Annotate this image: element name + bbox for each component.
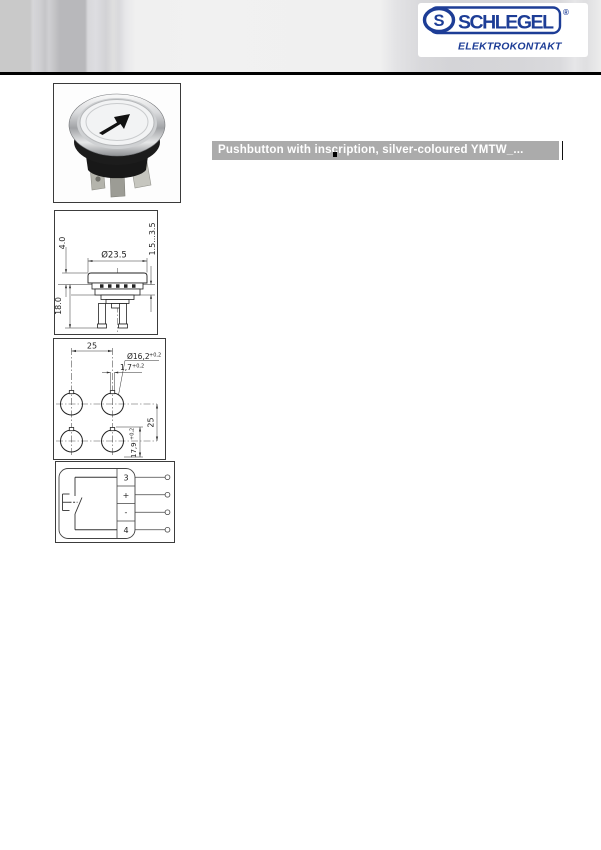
- schlegel-logo-graphic: S SCHLEGEL ® ELEKTROKONTAKT: [418, 3, 588, 57]
- actuator-icon: [63, 494, 78, 511]
- arrow: [143, 260, 148, 262]
- arrow: [65, 285, 67, 289]
- dim-notch-width: 1,7: [120, 363, 132, 372]
- arrow: [72, 350, 77, 352]
- dim-hole-tolerance: +0,2: [149, 353, 161, 359]
- arrow: [88, 260, 93, 262]
- dim-notch-distance-tolerance: +0,2: [130, 428, 136, 440]
- terminal-hole: [95, 176, 100, 181]
- arrow: [107, 372, 111, 374]
- notch-dim-lines: [102, 372, 142, 390]
- terminal-label-3: 3: [123, 474, 128, 483]
- arrow: [156, 404, 158, 409]
- product-photo: [53, 83, 181, 203]
- arrow: [139, 453, 141, 458]
- pin-right: [120, 304, 127, 325]
- header-divider: [0, 72, 601, 75]
- dim-pitch-horizontal: 25: [87, 342, 97, 351]
- circuit-diagram-drawing: 3 + - 4: [56, 462, 174, 542]
- circuit-diagram-figure: 3 + - 4: [55, 461, 175, 543]
- pushbutton-photo-graphic: [54, 84, 180, 202]
- logo-s-glyph: S: [433, 12, 444, 30]
- side-view-figure: Ø23.5 4.0 18.0 1.5...3.5: [54, 210, 158, 335]
- arrow: [150, 281, 152, 285]
- terminal-label-4: 4: [123, 526, 128, 535]
- registered-mark: ®: [563, 8, 569, 17]
- body-step: [101, 295, 134, 300]
- cap-profile: [88, 273, 147, 283]
- body-neck: [106, 300, 129, 304]
- arrow: [115, 372, 119, 374]
- flange: [95, 289, 140, 295]
- dim-notch-tolerance: +0,2: [132, 364, 144, 370]
- arrow: [139, 427, 141, 432]
- terminal-label-plus: +: [123, 491, 130, 500]
- dim-hole-diameter: Ø16,2: [127, 352, 150, 361]
- drilling-plan-figure: 25 Ø16,2 +0,2 1,7 +0,2 25 17,9 +0,2: [53, 338, 166, 460]
- logo-brand-text: SCHLEGEL: [458, 12, 554, 34]
- pin-left: [99, 304, 106, 325]
- drilling-plan-drawing: 25 Ø16,2 +0,2 1,7 +0,2 25 17,9 +0,2: [54, 339, 165, 459]
- stray-dot: [333, 152, 337, 157]
- side-view-drawing: Ø23.5 4.0 18.0 1.5...3.5: [55, 211, 157, 334]
- arrow: [156, 437, 158, 442]
- arrow: [108, 350, 113, 352]
- switch-contact: [75, 477, 117, 530]
- arrow: [69, 324, 71, 328]
- dim-panel-thickness: 1.5...3.5: [148, 222, 157, 255]
- dim-diameter: Ø23.5: [101, 250, 127, 261]
- dim-notch-distance: 17,9: [130, 442, 138, 458]
- arrow: [69, 285, 71, 289]
- dim-pitch-vertical: 25: [147, 417, 156, 427]
- terminal-leads: [135, 477, 165, 530]
- title-bar-end-tick: [562, 141, 563, 160]
- anti-rotation-notches: [69, 391, 114, 431]
- dim-cap-height: 4.0: [58, 237, 67, 250]
- dim-mount-depth: 18.0: [55, 297, 63, 315]
- page-title: Pushbutton with inscription, silver-colo…: [212, 141, 559, 160]
- pin-foot-right: [119, 324, 128, 328]
- logo-subtitle-text: ELEKTROKONTAKT: [458, 41, 563, 53]
- mounting-holes: [61, 393, 124, 452]
- arrow: [65, 269, 67, 273]
- depth-dim-lines: [65, 285, 97, 329]
- schlegel-logo: S SCHLEGEL ® ELEKTROKONTAKT: [418, 3, 588, 57]
- arrow: [150, 295, 152, 299]
- terminal-connectors: [165, 475, 170, 532]
- pin-foot-left: [98, 324, 107, 328]
- terminal-label-minus: -: [125, 508, 128, 517]
